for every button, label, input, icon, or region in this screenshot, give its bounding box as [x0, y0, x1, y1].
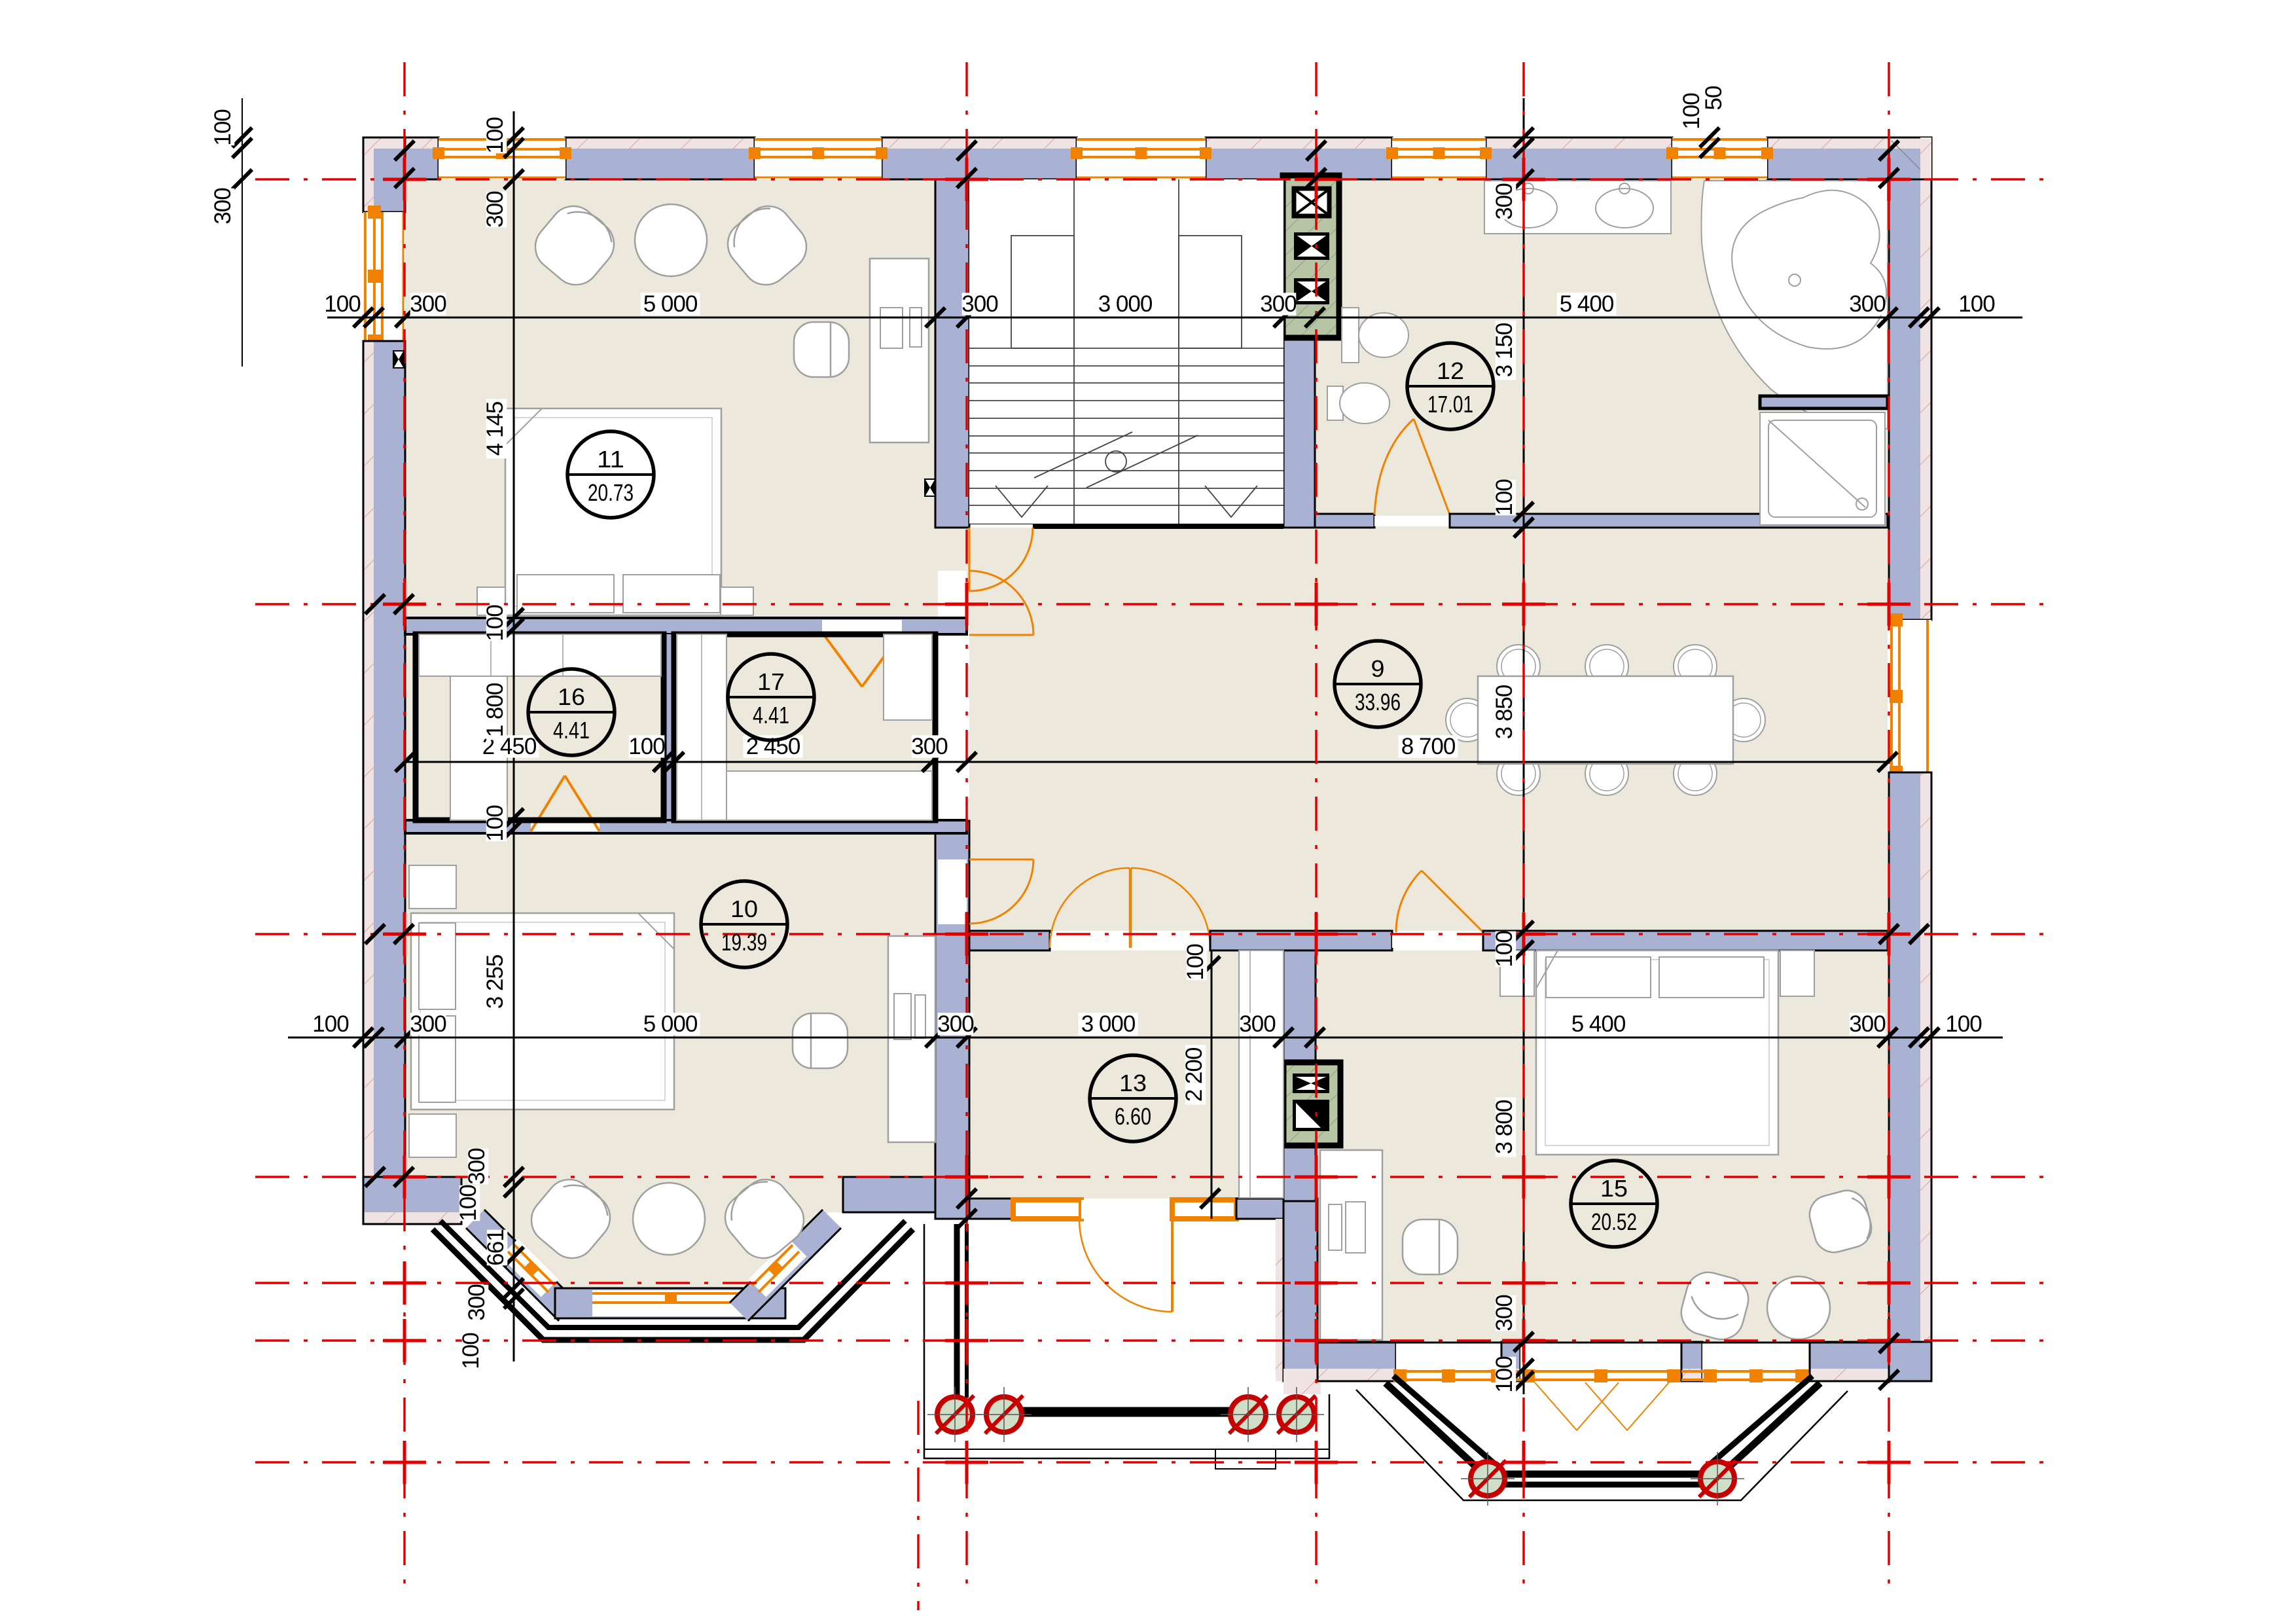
svg-text:4.41: 4.41	[753, 702, 789, 729]
svg-text:100: 100	[456, 1185, 481, 1221]
svg-text:300: 300	[1260, 291, 1297, 317]
svg-text:5 000: 5 000	[643, 1011, 698, 1037]
svg-text:5 000: 5 000	[643, 291, 698, 317]
svg-text:100: 100	[482, 117, 508, 154]
svg-text:15: 15	[1600, 1175, 1628, 1202]
svg-text:10: 10	[730, 895, 758, 922]
svg-text:100: 100	[628, 734, 665, 759]
svg-text:11: 11	[597, 446, 624, 473]
svg-text:100: 100	[1492, 479, 1517, 516]
svg-text:300: 300	[1492, 183, 1517, 220]
svg-text:4 145: 4 145	[482, 402, 508, 456]
svg-text:300: 300	[210, 188, 236, 225]
svg-text:17: 17	[757, 668, 785, 695]
svg-text:100: 100	[482, 805, 508, 842]
svg-text:100: 100	[458, 1333, 484, 1369]
svg-text:300: 300	[1492, 1295, 1517, 1331]
svg-text:6.60: 6.60	[1115, 1103, 1151, 1130]
svg-text:50: 50	[1701, 86, 1727, 110]
svg-text:300: 300	[410, 291, 446, 317]
svg-text:5 400: 5 400	[1560, 291, 1614, 317]
svg-text:5 400: 5 400	[1571, 1011, 1626, 1037]
svg-text:100: 100	[210, 109, 236, 146]
svg-text:100: 100	[324, 291, 361, 317]
svg-text:3 000: 3 000	[1081, 1011, 1136, 1037]
svg-text:300: 300	[464, 1148, 490, 1185]
svg-text:100: 100	[1958, 291, 1995, 317]
svg-text:1 800: 1 800	[482, 683, 508, 737]
svg-text:19.39: 19.39	[721, 929, 767, 956]
svg-text:17.01: 17.01	[1427, 391, 1473, 418]
svg-text:12: 12	[1437, 357, 1464, 384]
svg-text:100: 100	[1945, 1011, 1982, 1037]
svg-text:300: 300	[410, 1011, 446, 1037]
svg-text:3 150: 3 150	[1492, 323, 1517, 377]
svg-text:300: 300	[1849, 291, 1886, 317]
svg-text:100: 100	[312, 1011, 349, 1037]
svg-text:4.41: 4.41	[553, 717, 590, 744]
svg-text:20.52: 20.52	[1591, 1208, 1637, 1235]
svg-text:661: 661	[483, 1229, 509, 1265]
svg-text:3 000: 3 000	[1098, 291, 1153, 317]
svg-text:300: 300	[1849, 1011, 1886, 1037]
svg-text:300: 300	[482, 191, 508, 228]
svg-text:33.96: 33.96	[1355, 689, 1401, 715]
svg-text:100: 100	[482, 605, 508, 641]
svg-text:300: 300	[961, 291, 998, 317]
svg-text:300: 300	[911, 734, 948, 759]
svg-text:3 850: 3 850	[1492, 685, 1517, 739]
svg-text:13: 13	[1119, 1070, 1147, 1096]
svg-text:100: 100	[1492, 931, 1517, 967]
svg-text:8 700: 8 700	[1401, 734, 1456, 759]
svg-text:9: 9	[1371, 655, 1385, 682]
svg-text:20.73: 20.73	[588, 479, 634, 506]
svg-text:3 255: 3 255	[482, 955, 508, 1009]
svg-text:300: 300	[937, 1011, 974, 1037]
svg-text:300: 300	[464, 1284, 490, 1321]
svg-text:100: 100	[1183, 944, 1208, 981]
svg-text:3 800: 3 800	[1492, 1100, 1517, 1154]
svg-text:2 200: 2 200	[1181, 1047, 1207, 1102]
svg-text:16: 16	[558, 683, 585, 710]
svg-text:300: 300	[1239, 1011, 1276, 1037]
svg-text:100: 100	[1492, 1356, 1517, 1393]
